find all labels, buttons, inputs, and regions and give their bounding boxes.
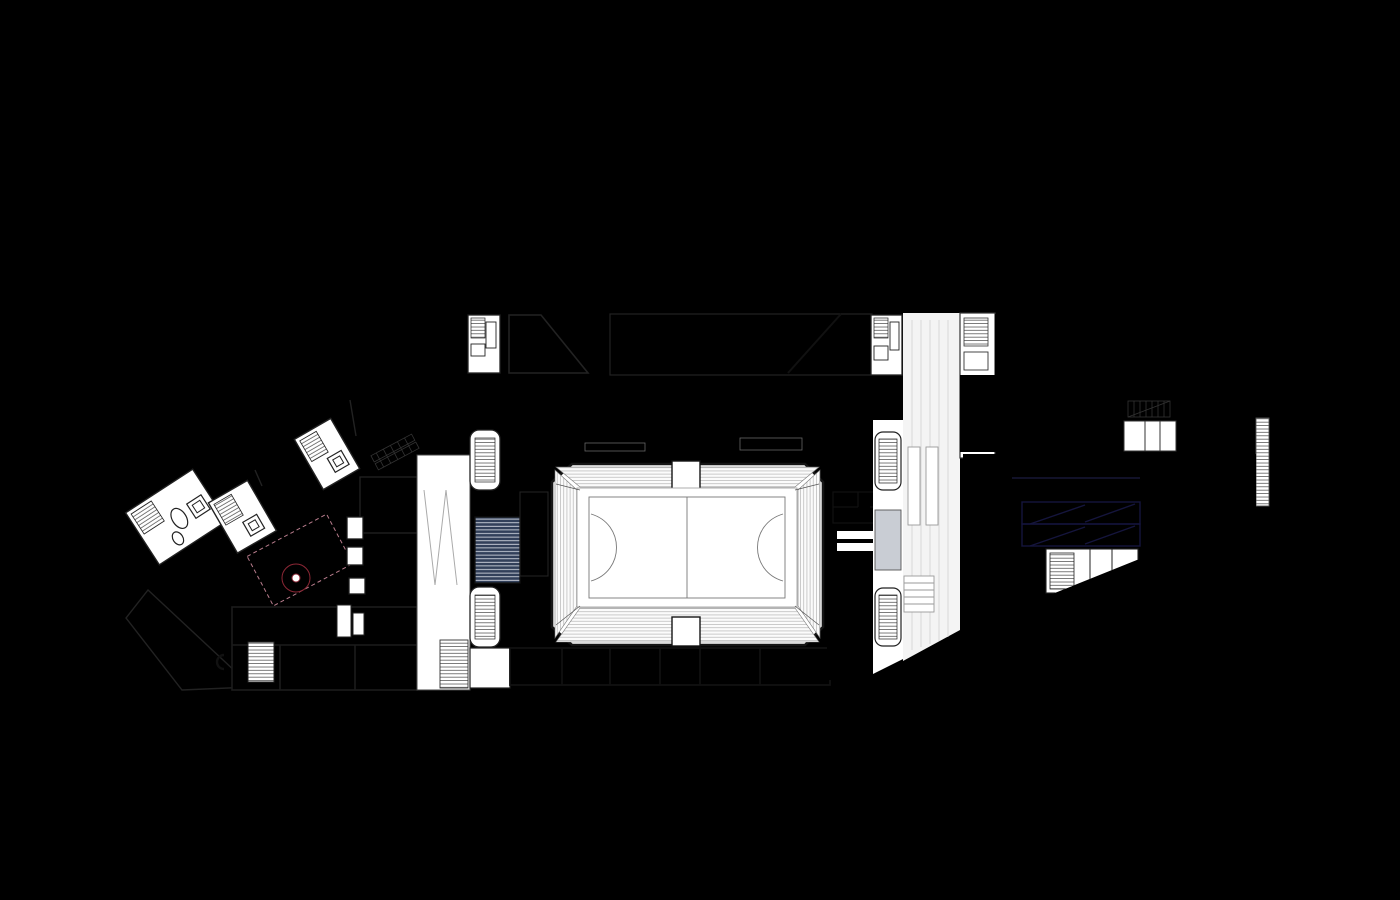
maroon-white-room <box>337 605 351 637</box>
bottom-slate-rooms <box>510 648 830 685</box>
site-plan-drawing <box>0 0 1400 900</box>
gap-canopy-2 <box>926 447 938 525</box>
east-core-top <box>875 432 901 490</box>
foyer-room-light <box>520 492 548 576</box>
wing-white-rooms <box>1124 421 1176 451</box>
wing-east-stair-strip <box>1256 418 1269 506</box>
sports-arena <box>552 438 823 646</box>
foyer-core-left-top <box>470 430 500 490</box>
gap-street <box>903 313 960 661</box>
skylight-strip <box>417 455 470 690</box>
white-building <box>1243 164 1400 232</box>
vomitory-south <box>672 617 700 646</box>
gap-crosswalk <box>904 576 934 612</box>
gray-building <box>722 0 784 16</box>
maroon-stair <box>248 642 274 682</box>
foyer-core-left-bottom <box>470 587 500 647</box>
maroon-white-room <box>353 613 364 635</box>
wing-core-stair <box>964 318 988 346</box>
east-core-bottom <box>875 588 901 646</box>
core-top-right <box>871 315 902 375</box>
east-room-mid <box>875 510 901 570</box>
gray-building <box>500 16 592 30</box>
foyer-stair-navy <box>475 517 520 583</box>
core-top-left <box>468 315 500 373</box>
plaza-furniture <box>347 517 365 594</box>
wing-raspberry-band <box>960 418 1256 452</box>
raspberry-block-plaza <box>360 477 417 533</box>
gap-canopy-1 <box>908 447 920 525</box>
foyer-room-sw <box>470 648 510 688</box>
vomitory-north <box>672 461 700 489</box>
